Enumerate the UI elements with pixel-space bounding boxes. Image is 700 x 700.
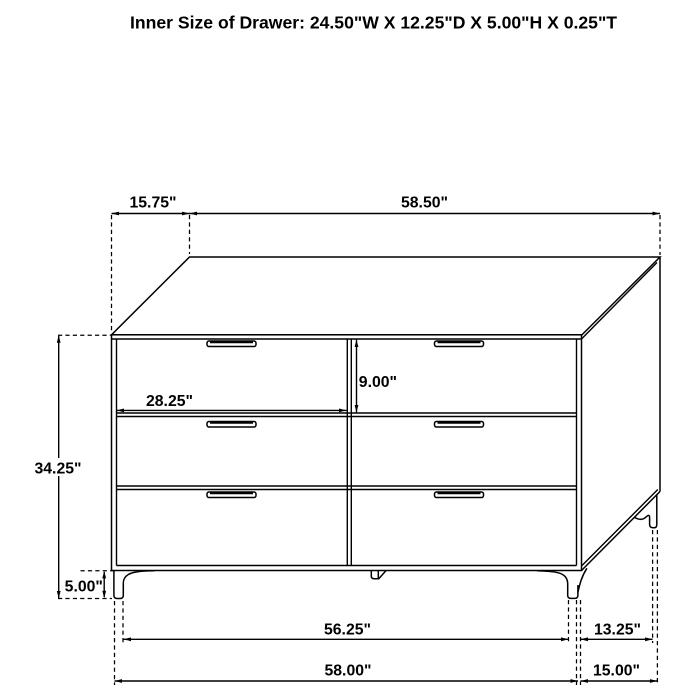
svg-text:5.00": 5.00": [65, 578, 103, 595]
svg-text:58.00": 58.00": [324, 663, 371, 680]
svg-text:Inner Size of Drawer: 24.50"W: Inner Size of Drawer: 24.50"W X 12.25"D …: [130, 13, 617, 33]
svg-text:58.50": 58.50": [401, 195, 448, 212]
svg-text:56.25": 56.25": [324, 622, 371, 639]
svg-text:34.25": 34.25": [34, 461, 81, 478]
svg-text:9.00": 9.00": [359, 374, 397, 391]
svg-text:28.25": 28.25": [146, 393, 193, 410]
svg-text:15.75": 15.75": [129, 195, 176, 212]
svg-text:15.00": 15.00": [593, 663, 640, 680]
svg-text:13.25": 13.25": [594, 622, 641, 639]
